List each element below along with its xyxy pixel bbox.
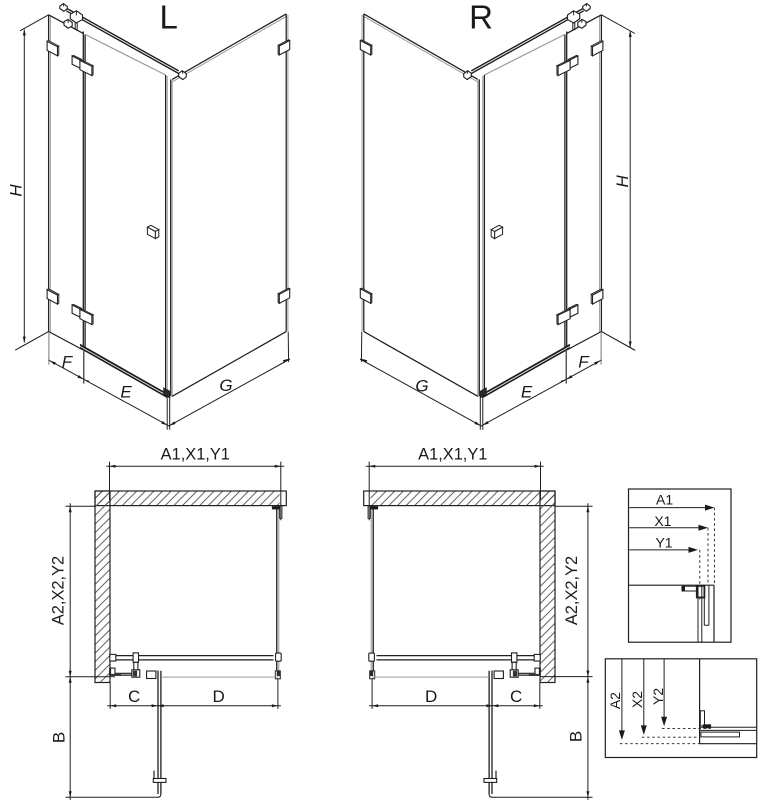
svg-text:G: G: [415, 377, 428, 396]
svg-text:A1: A1: [656, 492, 673, 508]
svg-text:X1: X1: [654, 513, 671, 529]
svg-text:F: F: [62, 352, 74, 371]
svg-text:X2: X2: [629, 691, 645, 708]
svg-text:H: H: [7, 184, 26, 197]
svg-text:A2,X2,Y2: A2,X2,Y2: [563, 556, 581, 625]
svg-text:A1,X1,Y1: A1,X1,Y1: [418, 445, 487, 463]
svg-text:F: F: [578, 352, 590, 371]
svg-text:B: B: [567, 731, 586, 742]
svg-text:A2: A2: [607, 692, 623, 709]
svg-text:L: L: [160, 0, 178, 35]
svg-text:R: R: [469, 0, 493, 35]
svg-text:G: G: [219, 376, 232, 395]
svg-text:C: C: [510, 687, 522, 706]
svg-text:Y1: Y1: [655, 534, 672, 550]
svg-text:H: H: [613, 174, 632, 187]
svg-text:B: B: [49, 732, 68, 743]
svg-text:A2,X2,Y2: A2,X2,Y2: [50, 556, 68, 625]
svg-text:C: C: [128, 687, 140, 706]
svg-text:E: E: [120, 383, 132, 402]
svg-text:D: D: [212, 687, 224, 706]
svg-text:E: E: [521, 383, 533, 402]
svg-text:Y2: Y2: [650, 688, 666, 705]
svg-text:D: D: [425, 687, 437, 706]
svg-text:A1,X1,Y1: A1,X1,Y1: [161, 445, 230, 463]
